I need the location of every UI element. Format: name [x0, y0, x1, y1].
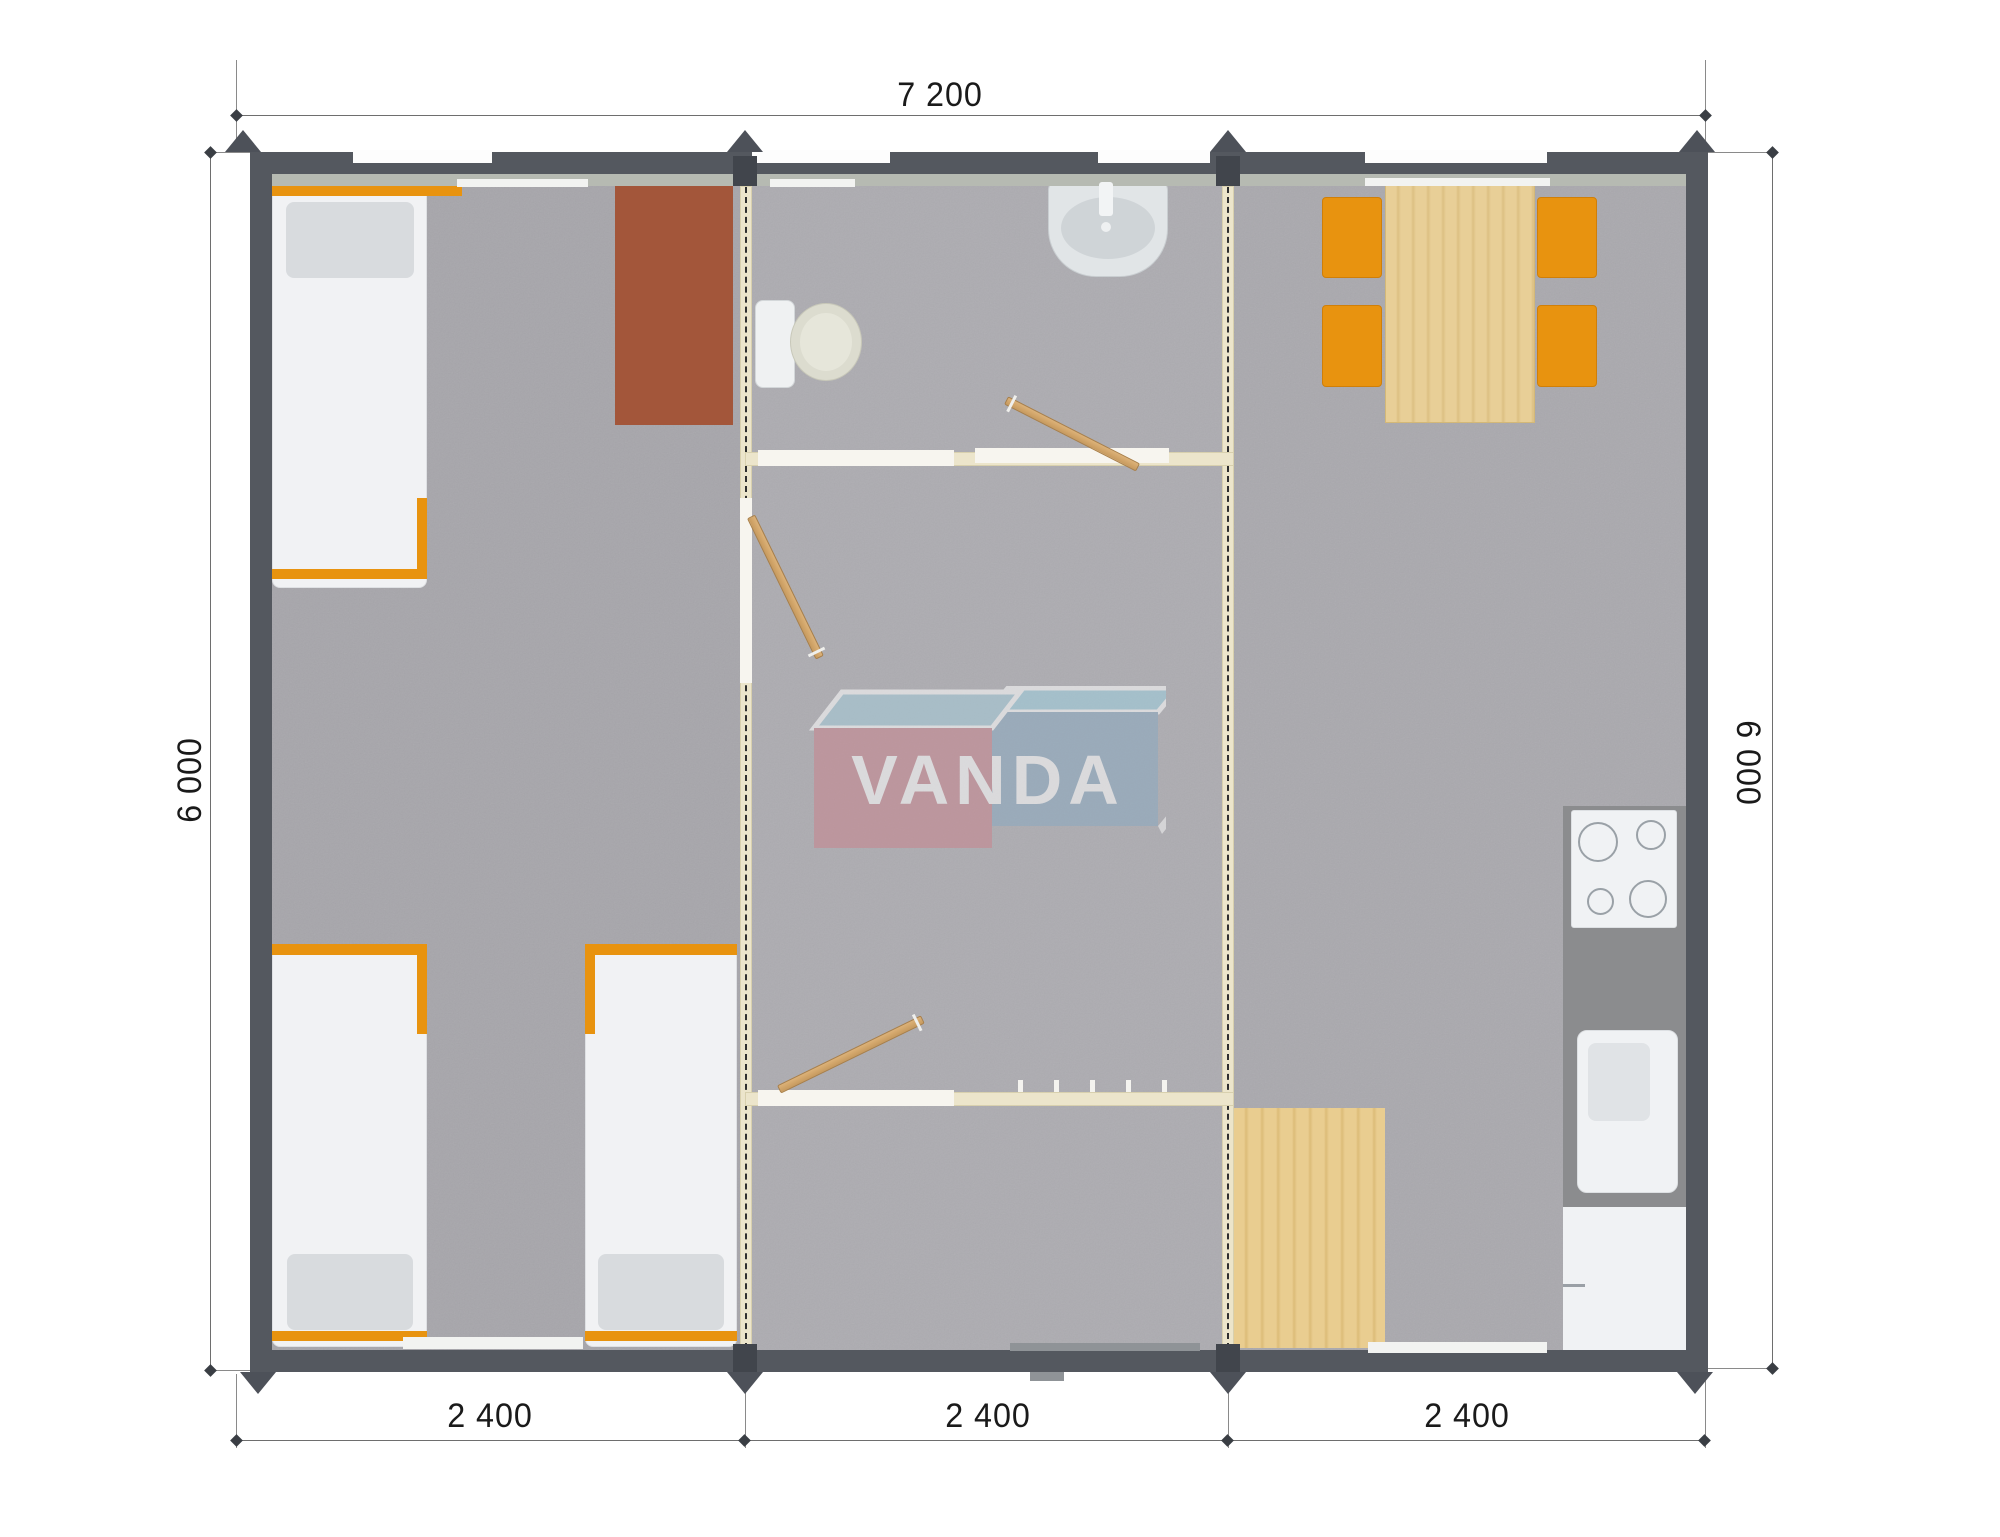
window-sill	[770, 179, 855, 187]
cooktop-burner	[1629, 880, 1667, 918]
dim-tick	[1698, 1434, 1711, 1447]
window-sill	[457, 179, 588, 187]
dim-left-line	[210, 150, 211, 1372]
vanda-logo: VANDA	[806, 686, 1166, 856]
exterior-wall-right	[1686, 152, 1708, 1372]
bed-bottom-right-pillow	[598, 1254, 724, 1330]
dining-chair	[1537, 305, 1597, 387]
dim-tick	[1766, 1362, 1779, 1375]
bathroom-door-opening	[975, 448, 1169, 463]
module-joint-connector	[733, 1344, 757, 1372]
logo-text: VANDA	[851, 741, 1125, 819]
bed-frame-rail	[272, 569, 427, 579]
dim-right-line	[1772, 150, 1773, 1370]
bed-frame-rail	[585, 944, 737, 955]
dim-tick	[230, 109, 243, 122]
desk	[615, 182, 733, 425]
module-joint-connector	[733, 156, 757, 186]
roof-seam-arrow	[727, 1372, 763, 1394]
dim-tick	[738, 1434, 751, 1447]
dim-top-label: 7 200	[845, 78, 1035, 112]
floor-plan-canvas: 7 200 6 000 6 000 2 400 2 400 2 400 VAND…	[0, 0, 2000, 1537]
bed-frame-rail	[272, 944, 427, 955]
bed-frame-rail	[585, 944, 595, 1034]
dim-tick	[230, 1434, 243, 1447]
dim-tick	[1221, 1434, 1234, 1447]
roof-seam-arrow	[1210, 130, 1246, 152]
dim-bottom-line	[237, 1440, 1706, 1441]
dim-tick	[204, 1364, 217, 1377]
cooktop-burner	[1578, 822, 1618, 862]
coat-hook	[1018, 1080, 1023, 1092]
coat-hook	[1126, 1080, 1131, 1092]
dining-chair	[1537, 197, 1597, 278]
dim-bottom-label-3: 2 400	[1372, 1399, 1562, 1433]
faucet-knob	[1101, 222, 1111, 232]
window-opening	[1365, 150, 1547, 163]
exterior-wall-bottom	[250, 1350, 1708, 1372]
logo-box-blue-side	[1158, 802, 1166, 834]
joint-dashed-line	[1227, 187, 1229, 1349]
faucet	[1099, 182, 1113, 216]
module-joint-connector	[1216, 156, 1240, 186]
dim-bottom-label-2: 2 400	[893, 1399, 1083, 1433]
window-sill	[1365, 178, 1550, 186]
window-sill	[1368, 1342, 1547, 1353]
window-sill	[403, 1337, 583, 1349]
bed-frame-rail	[417, 944, 427, 1034]
bed-bottom-left-pillow	[287, 1254, 413, 1330]
cooktop-burner	[1636, 820, 1666, 850]
bed-frame-rail	[417, 498, 427, 579]
module-joint-connector	[1216, 1344, 1240, 1372]
dim-bottom-label-1: 2 400	[395, 1399, 585, 1433]
roof-seam-arrow	[1210, 1372, 1246, 1394]
dim-tick	[204, 146, 217, 159]
roof-seam-arrow	[225, 130, 261, 152]
bed-frame-rail	[272, 186, 462, 196]
dining-chair	[1322, 197, 1382, 278]
roof-seam-arrow	[727, 130, 763, 152]
cabinet-handle	[1563, 1284, 1585, 1287]
exterior-wall-left	[250, 152, 272, 1372]
kitchen-cabinet	[1563, 1207, 1686, 1350]
window-opening	[752, 150, 890, 163]
cooktop-burner	[1587, 888, 1614, 915]
roof-seam-arrow	[1677, 1372, 1713, 1394]
bed-frame-rail	[585, 1331, 737, 1341]
module-joint-wall-right	[1222, 186, 1234, 1350]
entry-threshold	[1010, 1343, 1200, 1351]
dining-table	[1385, 183, 1535, 423]
dim-right-label: 6 000	[1731, 668, 1765, 858]
window-opening	[353, 150, 492, 163]
dim-left-label: 6 000	[173, 685, 207, 875]
coat-hook	[1054, 1080, 1059, 1092]
dining-chair	[1322, 305, 1382, 387]
dim-tick	[1766, 146, 1779, 159]
bed-top-pillow	[286, 202, 414, 278]
window-opening	[1098, 150, 1210, 163]
dim-top-line	[237, 115, 1706, 116]
wood-floor-mat	[1233, 1108, 1385, 1348]
roof-seam-arrow	[1679, 130, 1715, 152]
coat-hook	[1090, 1080, 1095, 1092]
kitchen-sink-basin	[1588, 1043, 1650, 1121]
roof-seam-arrow	[240, 1372, 276, 1394]
module-joint-wall-left	[740, 186, 752, 1350]
logo-box-red-top	[814, 692, 1020, 728]
entry-step	[1030, 1372, 1064, 1381]
bathroom-wall-panel	[758, 450, 954, 466]
coat-hook	[1162, 1080, 1167, 1092]
joint-dashed-line	[745, 187, 747, 1349]
toilet-seat	[800, 313, 852, 371]
toilet-tank	[755, 300, 795, 388]
hall-door-opening	[758, 1090, 954, 1106]
dim-tick	[1699, 109, 1712, 122]
